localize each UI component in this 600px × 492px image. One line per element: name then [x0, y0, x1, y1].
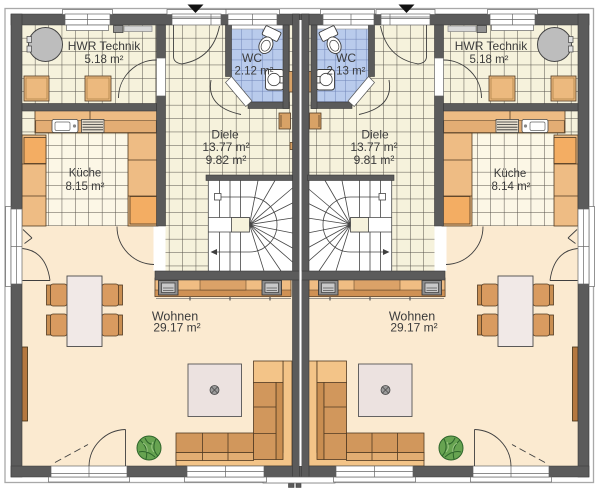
svg-text:5.18 m²: 5.18 m² [470, 54, 509, 66]
svg-text:29.17 m²: 29.17 m² [153, 321, 200, 335]
svg-text:13.77 m²: 13.77 m² [202, 140, 249, 154]
svg-text:HWR Technik: HWR Technik [455, 39, 528, 53]
svg-text:9.82 m²: 9.82 m² [206, 153, 247, 167]
svg-text:2.12 m²: 2.12 m² [235, 66, 274, 78]
svg-text:13.77 m²: 13.77 m² [350, 140, 397, 154]
svg-text:29.17 m²: 29.17 m² [390, 321, 437, 335]
svg-text:WC: WC [242, 51, 262, 65]
svg-text:Küche: Küche [494, 168, 527, 180]
svg-text:5.18 m²: 5.18 m² [85, 54, 124, 66]
svg-text:2.13 m²: 2.13 m² [327, 66, 366, 78]
svg-text:HWR Technik: HWR Technik [68, 39, 141, 53]
svg-text:9.81 m²: 9.81 m² [354, 153, 395, 167]
svg-text:WC: WC [336, 51, 356, 65]
svg-text:8.15 m²: 8.15 m² [66, 181, 105, 193]
svg-text:8.14 m²: 8.14 m² [492, 181, 531, 193]
svg-text:Küche: Küche [69, 168, 102, 180]
